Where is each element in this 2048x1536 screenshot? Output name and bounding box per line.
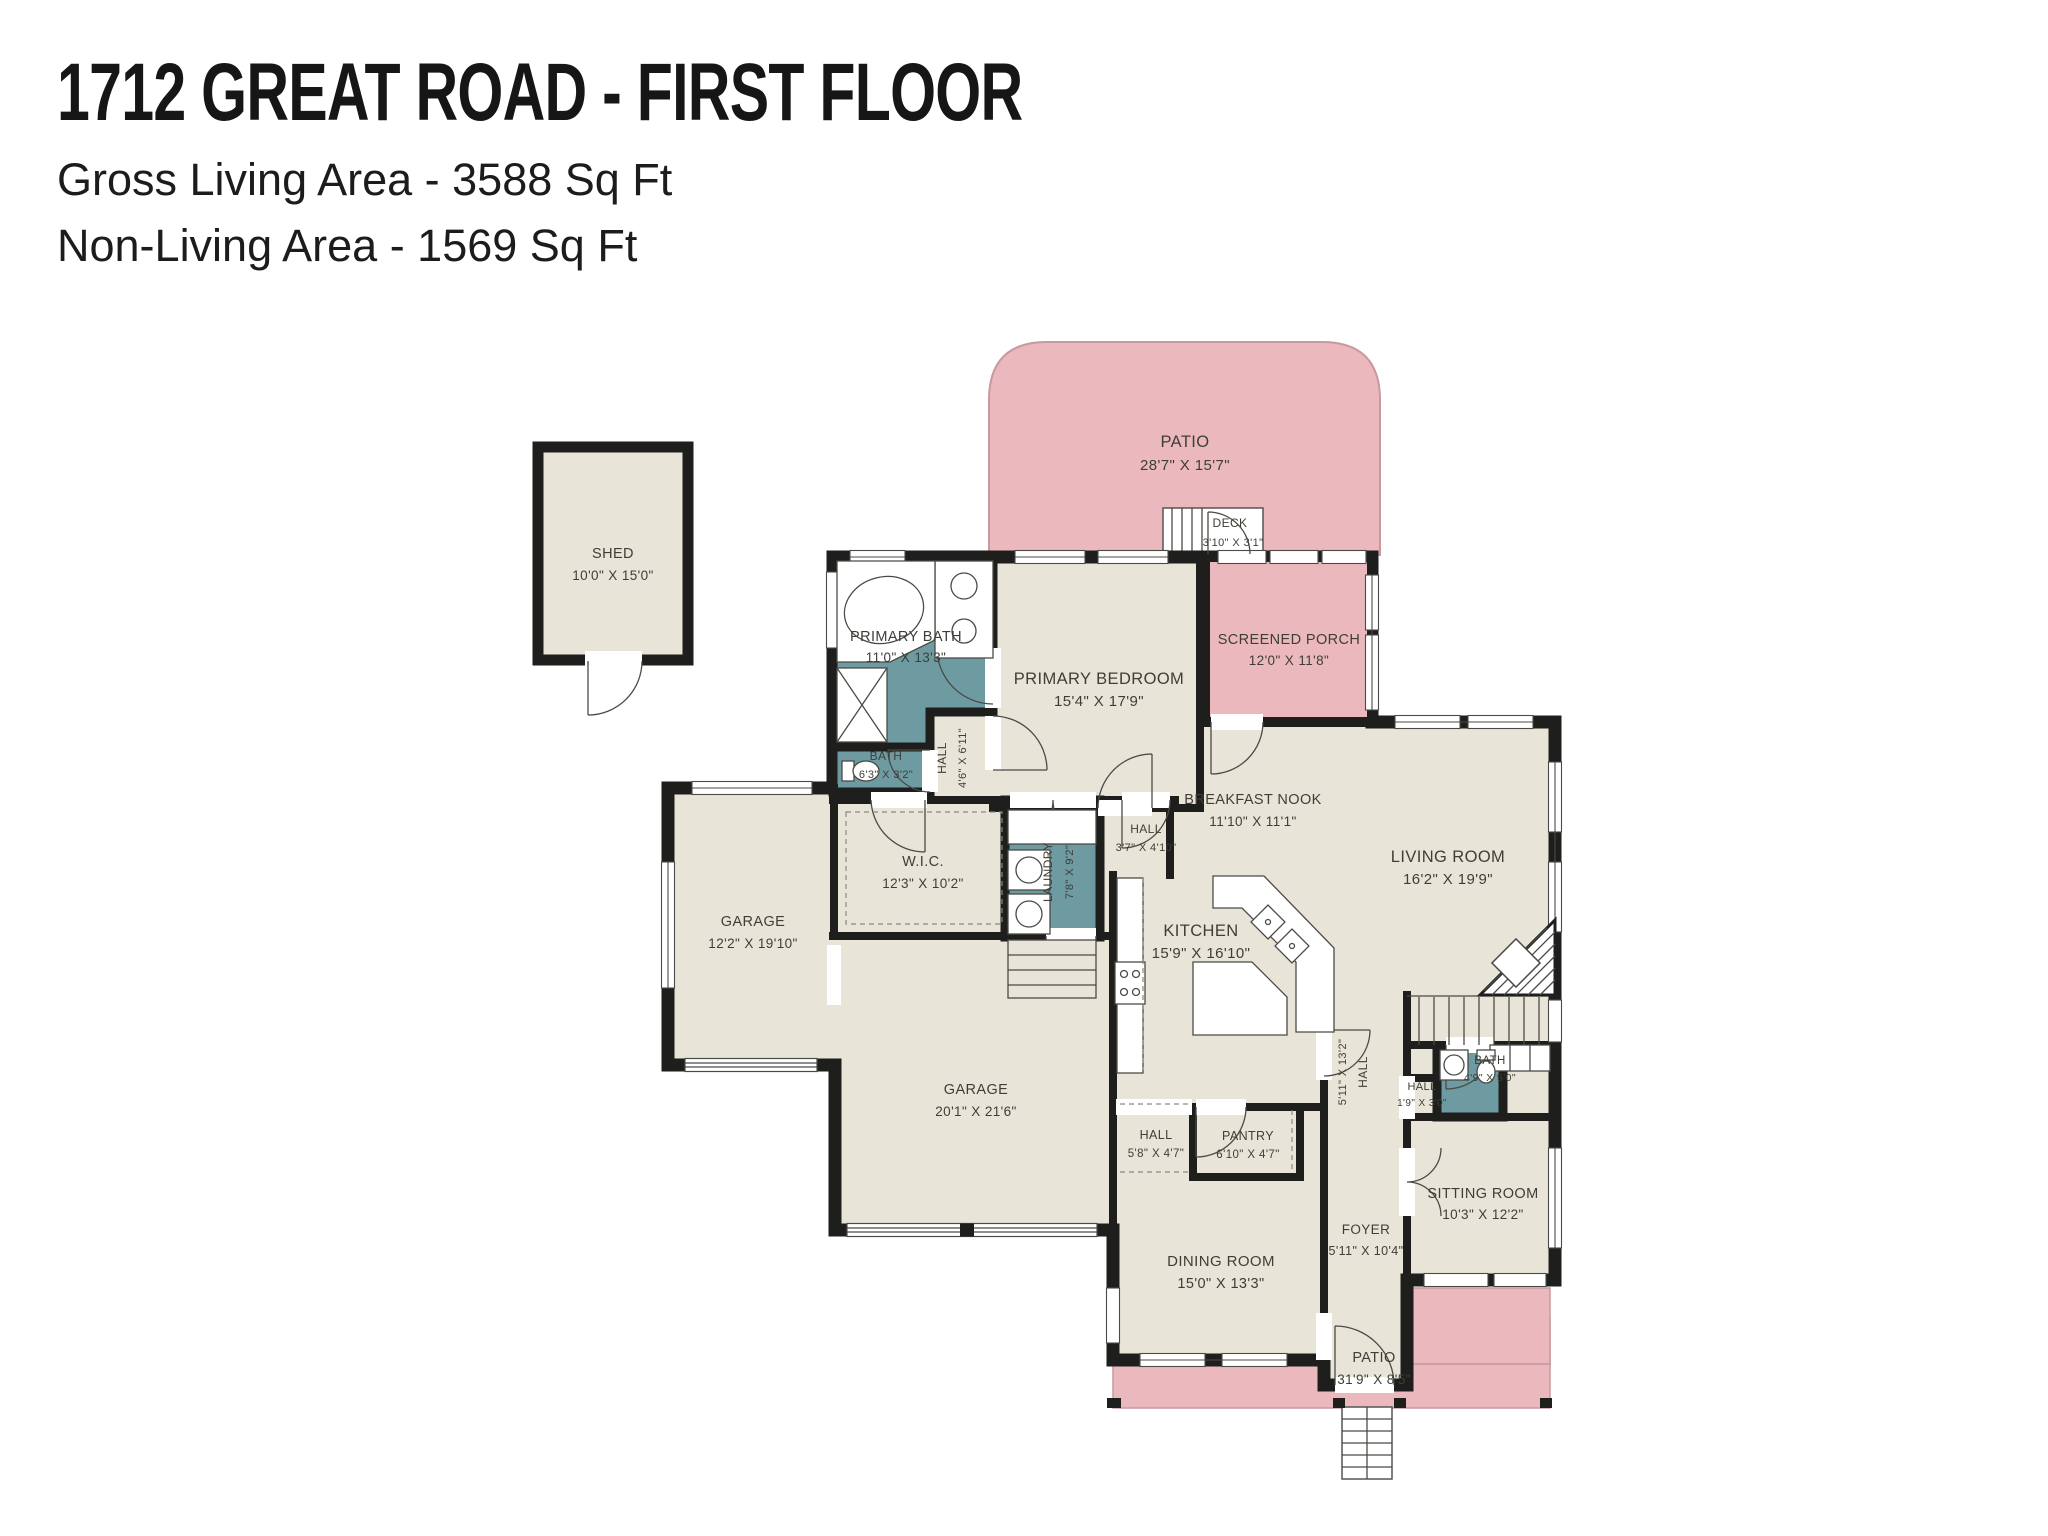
range-icon	[1115, 962, 1145, 1004]
label-deck: DECK	[1213, 516, 1248, 530]
label-foyer-dims: 5'11" X 10'4"	[1329, 1244, 1404, 1258]
label-garage-main: GARAGE	[944, 1082, 1008, 1098]
label-hall-kitchen-dims: 3'7" X 4'10"	[1116, 842, 1177, 854]
label-living-room: LIVING ROOM	[1391, 848, 1505, 866]
label-hall-tiny: HALL	[1407, 1081, 1436, 1093]
label-pantry-dims: 6'10" X 4'7"	[1216, 1149, 1279, 1161]
label-screened-porch: SCREENED PORCH	[1218, 632, 1361, 648]
label-hall-primary: HALL	[935, 742, 949, 774]
label-bath-lower: BATH	[1474, 1055, 1505, 1067]
label-kitchen: KITCHEN	[1163, 922, 1238, 940]
label-hall-center: HALL	[1356, 1056, 1370, 1088]
label-hall-primary-dims: 4'6" X 6'11"	[957, 728, 969, 788]
floor-plan-svg: SHED 10'0" X 15'0" PATIO 28'7" X 15'7" D…	[0, 0, 2048, 1536]
label-bath-upper: BATH	[870, 749, 903, 763]
label-primary-bedroom: PRIMARY BEDROOM	[1014, 670, 1184, 688]
label-hall-tiny-dims: 1'9" X 3'0"	[1397, 1098, 1447, 1109]
label-sitting-room: SITTING ROOM	[1427, 1186, 1538, 1202]
stairs-garage	[1008, 940, 1096, 998]
label-sitting-room-dims: 10'3" X 12'2"	[1442, 1207, 1524, 1222]
stairs-exterior	[1107, 1398, 1552, 1479]
label-kitchen-dims: 15'9" X 16'10"	[1152, 945, 1251, 962]
label-patio-bottom: PATIO	[1352, 1350, 1395, 1366]
label-patio-top-dims: 28'7" X 15'7"	[1140, 457, 1230, 474]
label-living-room-dims: 16'2" X 19'9"	[1403, 871, 1493, 888]
label-foyer: FOYER	[1342, 1222, 1391, 1237]
label-shed-dims: 10'0" X 15'0"	[572, 568, 654, 583]
sink-icon	[951, 573, 977, 599]
label-garage-left-dims: 12'2" X 19'10"	[708, 936, 797, 951]
label-patio-top: PATIO	[1160, 433, 1209, 451]
label-primary-bedroom-dims: 15'4" X 17'9"	[1054, 693, 1144, 710]
label-pantry: PANTRY	[1222, 1129, 1274, 1143]
label-hall-kitchen: HALL	[1130, 822, 1162, 836]
label-breakfast-nook: BREAKFAST NOOK	[1184, 792, 1321, 808]
label-bath-lower-dims: 4'9" X 5'0"	[1464, 1072, 1516, 1084]
label-hall-small-dims: 5'8" X 4'7"	[1128, 1148, 1185, 1160]
patio-bottom-step2	[1410, 1288, 1550, 1364]
label-dining-room-dims: 15'0" X 13'3"	[1177, 1276, 1264, 1292]
label-laundry-dims: 7'8" X 9'2"	[1064, 845, 1076, 899]
floor-plan-page: 1712 GREAT ROAD - FIRST FLOOR Gross Livi…	[0, 0, 2048, 1536]
label-wic: W.I.C.	[902, 854, 944, 870]
label-shed: SHED	[592, 546, 634, 562]
label-primary-bath: PRIMARY BATH	[850, 629, 962, 645]
laundry-cabinet	[1008, 810, 1096, 844]
label-bath-upper-dims: 6'3" X 3'2"	[859, 769, 913, 781]
label-wic-dims: 12'3" X 10'2"	[882, 876, 964, 891]
label-garage-left: GARAGE	[721, 914, 785, 930]
label-screened-porch-dims: 12'0" X 11'8"	[1249, 653, 1330, 668]
label-dining-room: DINING ROOM	[1167, 1253, 1275, 1270]
label-hall-center-dims: 5'11" X 13'2"	[1337, 1039, 1349, 1106]
toilet-icon	[842, 761, 854, 781]
label-primary-bath-dims: 11'0" X 13'3"	[866, 650, 947, 665]
label-patio-bottom-dims: 31'9" X 8'5"	[1337, 1372, 1411, 1387]
label-laundry: LAUNDRY	[1041, 842, 1055, 902]
label-hall-small: HALL	[1140, 1128, 1173, 1142]
label-deck-dims: 3'10" X 3'1"	[1203, 537, 1264, 549]
label-garage-main-dims: 20'1" X 21'6"	[935, 1104, 1017, 1119]
label-breakfast-nook-dims: 11'10" X 11'1"	[1209, 814, 1296, 829]
